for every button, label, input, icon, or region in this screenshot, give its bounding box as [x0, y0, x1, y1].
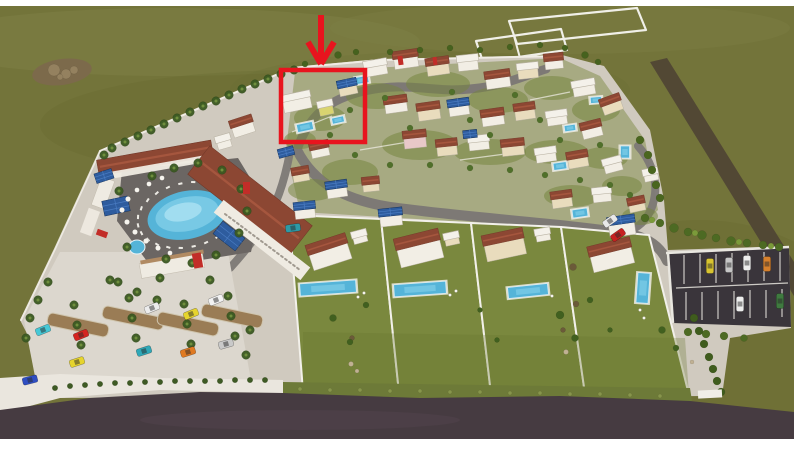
site-plan-image	[0, 0, 800, 453]
boundary-planter	[698, 389, 722, 398]
margin-right	[794, 0, 800, 453]
hill-light-b	[330, 2, 790, 54]
road-south-sheen	[140, 410, 460, 430]
margin-top	[0, 0, 800, 6]
masterplan-svg	[0, 0, 800, 453]
margin-bottom	[0, 439, 800, 453]
